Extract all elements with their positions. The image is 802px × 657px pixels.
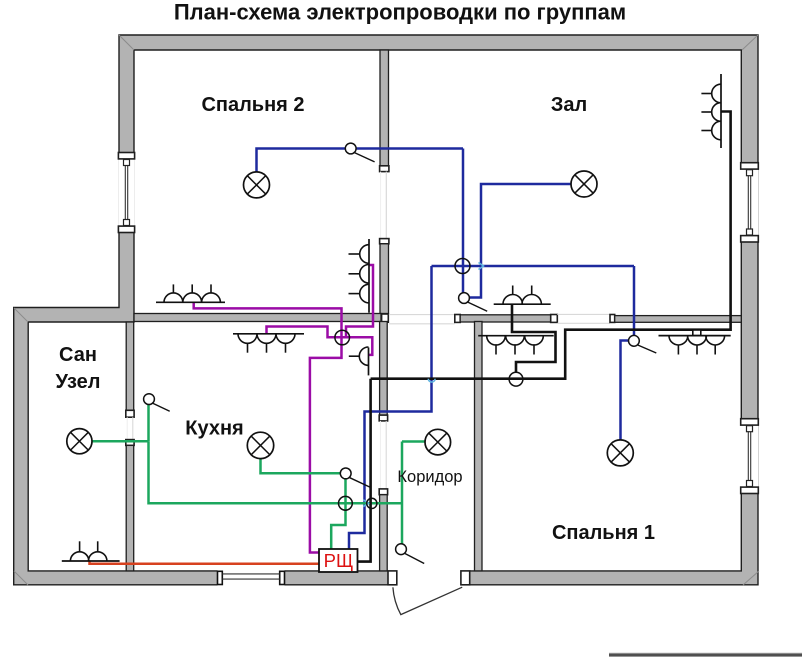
svg-text:Зал: Зал xyxy=(551,94,587,116)
svg-text:Коридор: Коридор xyxy=(397,468,462,486)
svg-text:Сан: Сан xyxy=(59,344,97,366)
svg-text:Кухня: Кухня xyxy=(185,418,243,440)
svg-text:Узел: Узел xyxy=(56,371,101,393)
svg-text:РЩ: РЩ xyxy=(324,550,354,571)
svg-text:План-схема электропроводки по: План-схема электропроводки по группам xyxy=(174,0,626,25)
svg-text:Спальня 1: Спальня 1 xyxy=(552,522,655,544)
svg-text:Спальня 2: Спальня 2 xyxy=(201,94,304,116)
